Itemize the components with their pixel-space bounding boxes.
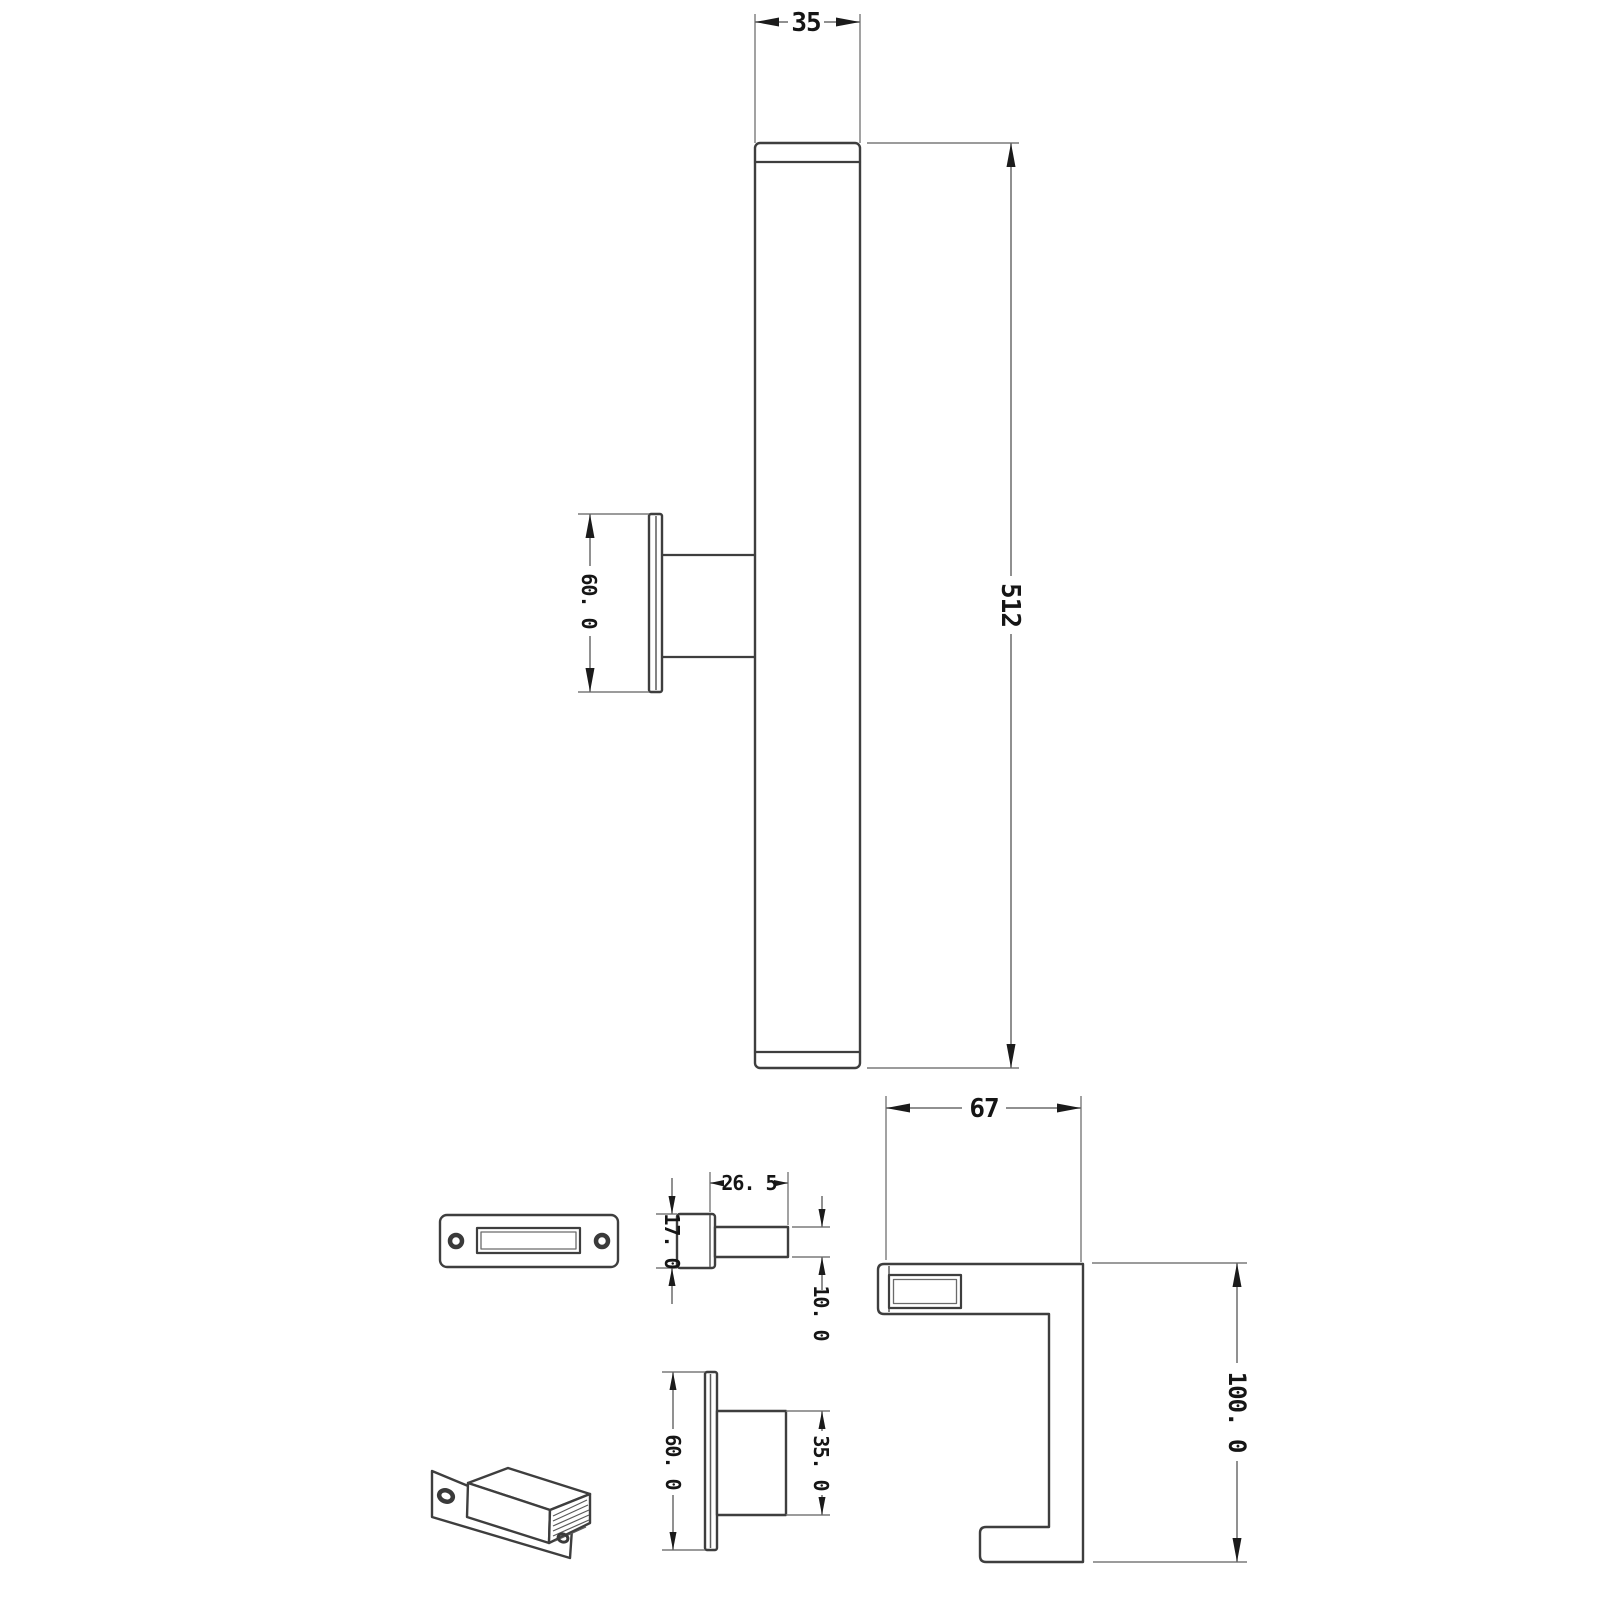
dim-text-peg-length: 26. 5 (721, 1171, 776, 1195)
dimension-peg-plate-height: 17. 0 (656, 1178, 684, 1304)
dim-text-fixture-width: 35 (791, 8, 820, 38)
arrowhead-down (670, 1532, 677, 1550)
dim-text-peg-plate-height: 17. 0 (660, 1213, 684, 1268)
dimension-peg-length: 26. 5 (710, 1171, 788, 1225)
view-iso-bracket (432, 1468, 590, 1558)
arrowhead-up (670, 1372, 677, 1390)
peg-body-outline (715, 1227, 788, 1257)
arrowhead-up (669, 1268, 676, 1286)
arrowhead-up (586, 514, 595, 538)
dimension-bracket-plate-height: 60. 0 (577, 514, 649, 692)
dim-text-fixture-length: 512 (995, 583, 1025, 627)
light-bar-outline (755, 143, 860, 1068)
dim-text-clamp-depth: 67 (969, 1094, 998, 1124)
arrowhead-up (1007, 143, 1016, 167)
drawing-svg: 35 60. 0 512 (0, 0, 1600, 1600)
technical-drawing-page: 35 60. 0 512 (0, 0, 1600, 1600)
arrowhead-down (586, 668, 595, 692)
arrowhead-up (819, 1411, 826, 1429)
dimension-clamp-depth: 67 (886, 1094, 1081, 1262)
arrowhead-left (886, 1104, 910, 1113)
arrowhead-down (819, 1209, 826, 1227)
arrowhead-down (819, 1497, 826, 1515)
arrowhead-left (755, 18, 779, 27)
view-backplate-front (440, 1215, 618, 1267)
view-clamp-side: 67 100. 0 (878, 1094, 1251, 1562)
dim-text-peg-diameter: 10. 0 (809, 1285, 833, 1340)
arrowhead-down (1233, 1538, 1242, 1562)
arrowhead-right (1057, 1104, 1081, 1113)
view-peg-detail: 26. 5 17. 0 10. 0 (656, 1171, 833, 1341)
view-fixture-side: 35 60. 0 512 (577, 8, 1025, 1068)
mount-boss-outline (717, 1411, 786, 1515)
dim-text-mount-boss-diameter: 35. 0 (809, 1435, 833, 1490)
dim-text-clamp-height: 100. 0 (1223, 1372, 1251, 1453)
dim-text-bracket-plate-height: 60. 0 (577, 573, 601, 628)
backplate-outline (440, 1215, 618, 1267)
dimension-fixture-length: 512 (867, 143, 1025, 1068)
dimension-fixture-width: 35 (755, 8, 860, 143)
dim-text-mount-plate-height: 60. 0 (661, 1434, 685, 1489)
arrowhead-right (836, 18, 860, 27)
arrowhead-up (819, 1257, 826, 1275)
arrowhead-down (1007, 1044, 1016, 1068)
dimension-peg-diameter: 10. 0 (792, 1196, 833, 1341)
dimension-mount-plate-height: 60. 0 (661, 1372, 705, 1550)
dimension-clamp-height: 100. 0 (1092, 1263, 1251, 1562)
dimension-mount-boss-diameter: 35. 0 (786, 1411, 833, 1515)
view-mount-detail: 60. 0 35. 0 (661, 1372, 833, 1550)
arrowhead-down (669, 1196, 676, 1214)
arrowhead-up (1233, 1263, 1242, 1287)
